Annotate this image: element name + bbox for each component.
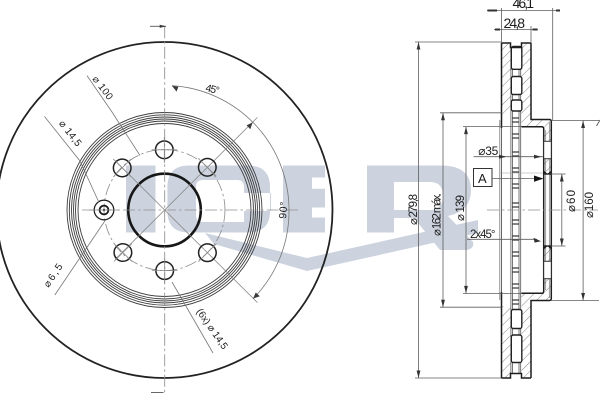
svg-text:⌀ 139: ⌀ 139 [455,195,467,221]
svg-text:⌀160: ⌀160 [584,192,596,218]
svg-text:⌀35: ⌀35 [478,144,498,158]
svg-text:⌀ 162 máx.: ⌀ 162 máx. [431,193,443,236]
svg-text:90°: 90° [277,201,290,219]
svg-text:24,8: 24,8 [504,15,526,31]
svg-text:46,1: 46,1 [513,0,535,11]
svg-text:⌀60: ⌀60 [566,190,578,212]
svg-text:A: A [478,171,487,186]
svg-text:2x45°: 2x45° [470,229,496,241]
svg-text:⌀ 279,8: ⌀ 279,8 [408,194,420,225]
